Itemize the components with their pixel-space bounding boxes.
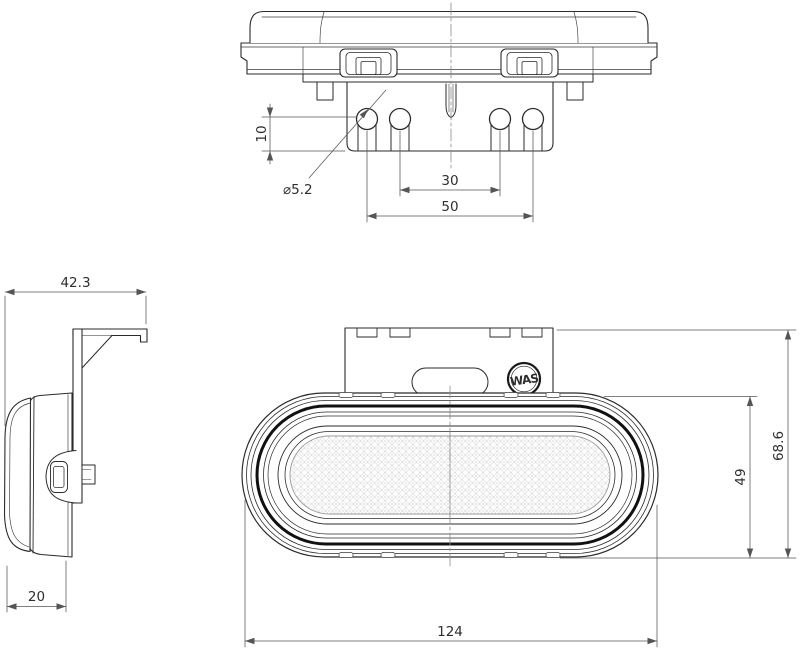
dim-width-label: 124 bbox=[437, 624, 463, 640]
dim-total-height-label: 68.6 bbox=[771, 431, 787, 461]
dim-pin-spacing-inner-label: 30 bbox=[441, 173, 458, 189]
was-logo: WAS bbox=[508, 363, 540, 395]
dim-body-depth-label: 20 bbox=[28, 589, 45, 605]
dim-body-height-label: 49 bbox=[733, 468, 749, 485]
tab-right bbox=[567, 82, 583, 100]
dim-total-depth-label: 42.3 bbox=[60, 275, 90, 291]
bracket-gusset bbox=[82, 336, 112, 369]
lens-dome-top bbox=[250, 12, 648, 44]
dim-pin-length bbox=[262, 104, 356, 164]
front-view: WAS bbox=[242, 328, 796, 647]
dim-pin-length-label: 10 bbox=[254, 125, 270, 142]
technical-drawing-page: 10 ⌀5.2 30 50 bbox=[0, 0, 800, 648]
side-view: 42.3 20 bbox=[5, 275, 148, 612]
dim-pin-diameter-label: ⌀5.2 bbox=[283, 182, 313, 198]
mount-peg bbox=[82, 465, 95, 484]
lens-side bbox=[5, 398, 31, 552]
drawing-svg: 10 ⌀5.2 30 50 bbox=[0, 0, 800, 648]
dim-pin-spacing-outer-label: 50 bbox=[441, 199, 458, 215]
top-view: 10 ⌀5.2 30 50 bbox=[241, 3, 657, 222]
tab-left bbox=[317, 82, 333, 100]
